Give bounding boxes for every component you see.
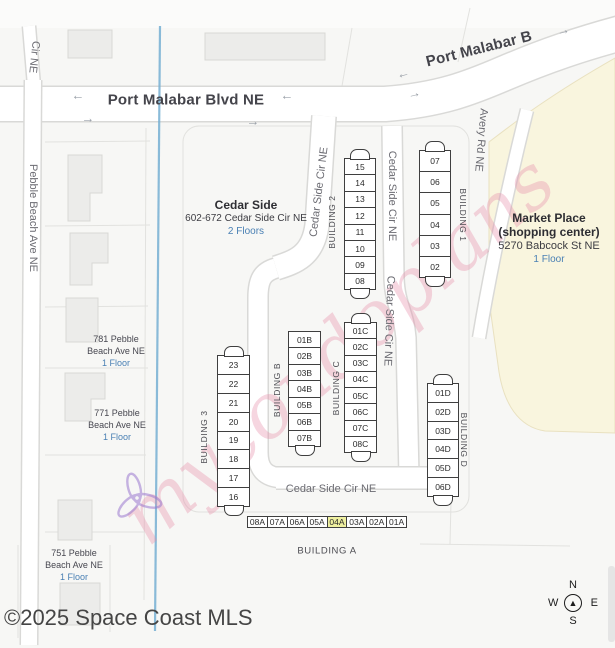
building-a: 08A07A06A05A04A03A02A01A [247,516,407,537]
unit-02C[interactable]: 02C [344,338,377,355]
house-address-line: Beach Ave NE [87,345,145,357]
unit-06[interactable]: 06 [419,171,451,193]
building-end-cap [433,374,453,385]
unit-03[interactable]: 03 [419,235,451,257]
cedar-side-info: Cedar Side 602-672 Cedar Side Cir NE 2 F… [185,198,307,237]
unit-12[interactable]: 12 [344,207,376,224]
unit-01B[interactable]: 01B [288,331,321,348]
unit-03D[interactable]: 03D [427,421,459,441]
unit-07A[interactable]: 07A [267,516,288,528]
unit-05D[interactable]: 05D [427,458,459,478]
unit-20[interactable]: 20 [217,412,250,432]
building-end-cap [351,313,371,324]
unit-01A[interactable]: 01A [386,516,407,528]
north-margin [0,0,615,28]
building-end-cap [433,495,453,506]
unit-17[interactable]: 17 [217,468,250,488]
unit-08A[interactable]: 08A [247,516,268,528]
building-end-cap [351,451,371,462]
unit-06D[interactable]: 06D [427,477,459,497]
unit-02B[interactable]: 02B [288,347,321,364]
unit-04[interactable]: 04 [419,214,451,236]
building-end-cap [295,445,315,456]
unit-18[interactable]: 18 [217,449,250,469]
house-label-751: 751 Pebble Beach Ave NE 1 Floor [45,547,103,583]
house-address-line: 781 Pebble [87,333,145,345]
market-name: Market Place [498,211,600,225]
scrollbar-thumb[interactable] [608,566,615,642]
building-end-cap [224,505,244,516]
road-arrow-east: → [82,111,95,126]
building-1-label: BUILDING 1 [458,188,468,241]
street-label-pebble-beach: Pebble Beach Ave NE [27,164,39,272]
building-a-units: 08A07A06A05A04A03A02A01A [247,516,407,528]
unit-11[interactable]: 11 [344,224,376,241]
building-d-label: BUILDING D [459,413,469,468]
building-end-cap [425,276,445,287]
market-floors: 1 Floor [498,254,600,265]
unit-07C[interactable]: 07C [344,420,377,437]
house-address-line: 771 Pebble [88,407,146,419]
house-label-771: 771 Pebble Beach Ave NE 1 Floor [88,407,146,443]
unit-23[interactable]: 23 [217,355,250,375]
compass-rose: N S W E ▲ [548,579,598,627]
building-d: 01D02D03D04D05D06D [427,383,459,497]
building-2-units: 1514131211100908 [344,158,376,290]
building-b-label: BUILDING B [272,363,282,417]
unit-02[interactable]: 02 [419,256,451,278]
unit-19[interactable]: 19 [217,431,250,451]
building-d-units: 01D02D03D04D05D06D [427,383,459,497]
road-arrow-east: → [247,114,260,129]
unit-06B[interactable]: 06B [288,413,321,430]
unit-01C[interactable]: 01C [344,322,377,339]
road-arrow-west: ← [281,88,294,103]
unit-02A[interactable]: 02A [366,516,387,528]
unit-14[interactable]: 14 [344,174,376,191]
building-1: 070605040302 [419,150,451,278]
unit-01D[interactable]: 01D [427,383,459,403]
building-3: 2322212019181716 [217,355,250,507]
unit-06A[interactable]: 06A [287,516,308,528]
house-address-line: Beach Ave NE [88,419,146,431]
building-c-label: BUILDING C [331,361,341,416]
street-label-cedar-bottom: Cedar Side Cir NE [286,483,376,495]
street-label-cedar-inner: Cedar Side Cir NE [386,151,398,241]
map-canvas: mycondoplans Port Malabar Blvd NE Port M… [0,0,615,648]
building-b-units: 01B02B03B04B05B06B07B [288,331,321,447]
building-end-cap [350,149,370,160]
complex-floors: 2 Floors [185,226,307,237]
compass-needle-glyph: ▲ [569,598,578,608]
street-label-port-malabar: Port Malabar Blvd NE [108,92,265,109]
building-a-label: BUILDING A [297,546,356,557]
house-address-line: Beach Ave NE [45,559,103,571]
building-end-cap [350,288,370,299]
compass-east: E [591,597,598,609]
unit-04A[interactable]: 04A [327,516,348,528]
complex-name: Cedar Side [185,198,307,212]
building-end-cap [425,141,445,152]
road-arrow-west: ← [72,88,85,103]
house-label-781: 781 Pebble Beach Ave NE 1 Floor [87,333,145,369]
market-subtitle: (shopping center) [498,225,600,239]
unit-04B[interactable]: 04B [288,380,321,397]
building-b: 01B02B03B04B05B06B07B [288,331,321,447]
building-2-label: BUILDING 2 [327,195,337,248]
copyright-text: ©2025 Space Coast MLS [4,605,253,631]
building-2: 1514131211100908 [344,158,376,290]
building-1-units: 070605040302 [419,150,451,278]
compass-north: N [569,579,577,591]
unit-03C[interactable]: 03C [344,355,377,372]
unit-05[interactable]: 05 [419,192,451,214]
house-floors: 1 Floor [45,571,103,583]
unit-21[interactable]: 21 [217,393,250,413]
unit-05C[interactable]: 05C [344,387,377,404]
unit-03A[interactable]: 03A [346,516,367,528]
unit-05A[interactable]: 05A [307,516,328,528]
unit-02D[interactable]: 02D [427,402,459,422]
market-place-info: Market Place (shopping center) 5270 Babc… [498,211,600,265]
unit-06C[interactable]: 06C [344,403,377,420]
unit-03B[interactable]: 03B [288,364,321,381]
unit-05B[interactable]: 05B [288,397,321,414]
house-floors: 1 Floor [87,357,145,369]
building-3-label: BUILDING 3 [199,410,209,463]
building-c-units: 01C02C03C04C05C06C07C08C [344,322,377,453]
house-address-line: 751 Pebble [45,547,103,559]
complex-address: 602-672 Cedar Side Cir NE [185,213,307,224]
unit-04C[interactable]: 04C [344,371,377,388]
unit-09[interactable]: 09 [344,256,376,273]
house-floors: 1 Floor [88,431,146,443]
unit-15[interactable]: 15 [344,158,376,175]
unit-10[interactable]: 10 [344,240,376,257]
compass-needle-icon: ▲ [564,594,582,612]
unit-04D[interactable]: 04D [427,439,459,459]
unit-13[interactable]: 13 [344,191,376,208]
unit-22[interactable]: 22 [217,374,250,394]
building-3-units: 2322212019181716 [217,355,250,507]
unit-07[interactable]: 07 [419,150,451,172]
compass-south: S [569,615,576,627]
market-address: 5270 Babcock St NE [498,240,600,252]
building-end-cap [224,346,244,357]
building-c: 01C02C03C04C05C06C07C08C [344,322,377,453]
compass-west: W [548,597,558,609]
